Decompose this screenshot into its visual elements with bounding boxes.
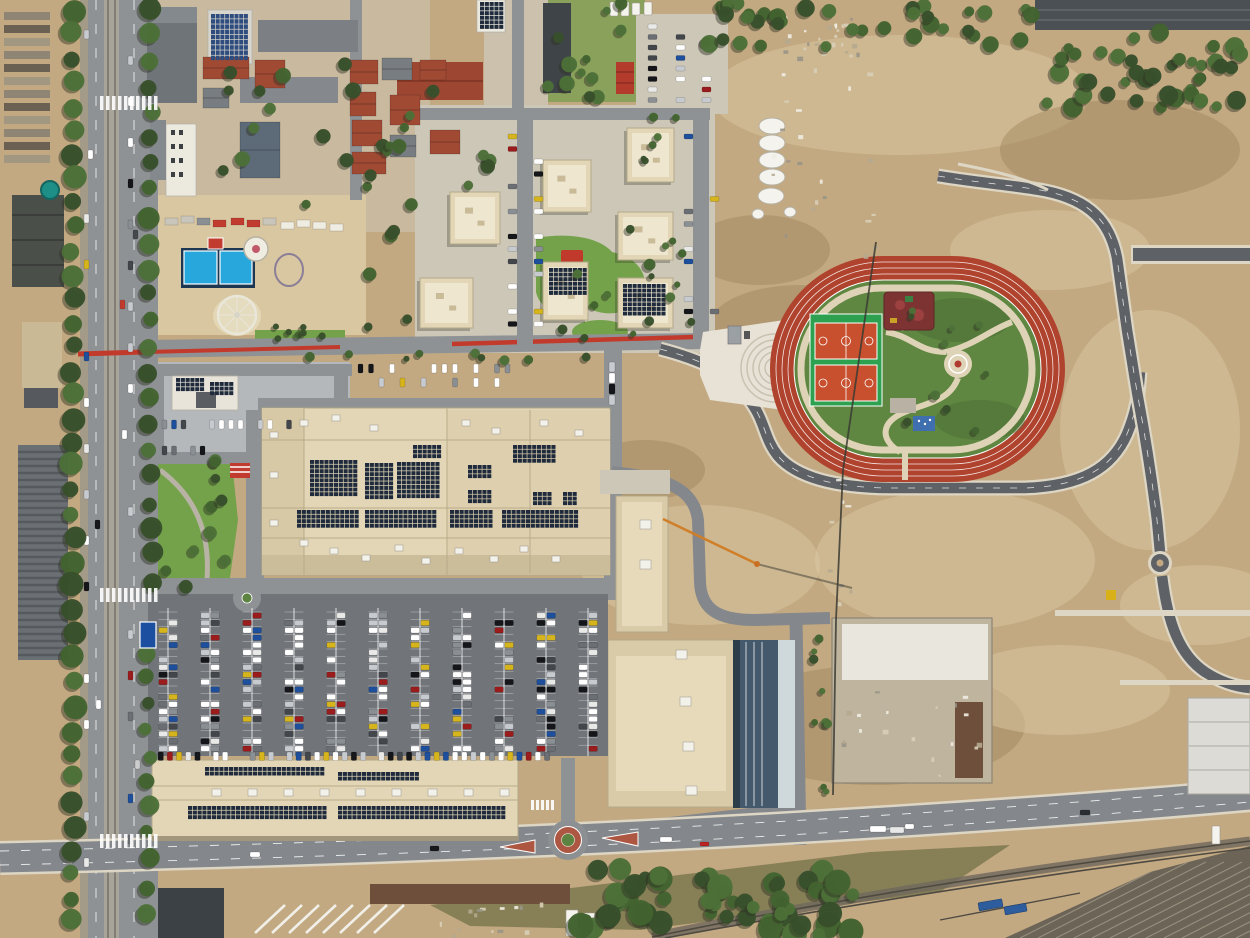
apartment-block bbox=[447, 192, 500, 247]
parked-car bbox=[589, 746, 598, 751]
tree bbox=[1095, 46, 1107, 58]
solar-panel bbox=[217, 806, 221, 810]
tree bbox=[65, 287, 86, 308]
crosswalk-bar bbox=[154, 96, 158, 110]
solar-panel bbox=[563, 497, 567, 501]
parked-car bbox=[128, 794, 133, 803]
tree bbox=[949, 325, 955, 331]
solar-panel bbox=[435, 490, 439, 494]
solar-panel bbox=[311, 772, 315, 776]
solar-panel bbox=[402, 462, 406, 466]
tree bbox=[644, 316, 654, 326]
solar-panel bbox=[479, 524, 483, 528]
solar-panel bbox=[494, 16, 498, 20]
solar-panel bbox=[423, 524, 427, 528]
solar-panel bbox=[215, 382, 219, 386]
solar-panel bbox=[239, 35, 243, 40]
tree bbox=[586, 72, 598, 84]
solar-panel bbox=[340, 524, 344, 528]
solar-panel bbox=[243, 772, 247, 776]
tree bbox=[792, 915, 812, 935]
parked-car bbox=[84, 398, 89, 407]
solar-panel bbox=[397, 485, 401, 489]
solar-panel bbox=[324, 465, 328, 469]
solar-panel bbox=[426, 476, 430, 480]
debris-item bbox=[849, 590, 852, 594]
solar-panel bbox=[348, 460, 352, 464]
solar-panel bbox=[657, 312, 661, 316]
solar-panel bbox=[502, 524, 506, 528]
solar-panel bbox=[230, 24, 234, 29]
solar-panel bbox=[560, 510, 564, 514]
parked-car bbox=[421, 665, 430, 670]
solar-panel bbox=[241, 806, 245, 810]
solar-panel bbox=[250, 811, 254, 815]
parked-car bbox=[648, 77, 657, 82]
solar-panel bbox=[421, 494, 425, 498]
solar-panel bbox=[188, 815, 192, 819]
tree bbox=[559, 76, 575, 92]
debris-item bbox=[491, 930, 493, 933]
solar-panel bbox=[315, 483, 319, 487]
parked-car bbox=[379, 752, 384, 761]
solar-panel bbox=[381, 772, 385, 776]
debris-item bbox=[856, 53, 859, 58]
solar-panel bbox=[322, 811, 326, 815]
solar-panel bbox=[389, 491, 393, 495]
parked-car bbox=[508, 134, 517, 139]
solar-panel bbox=[521, 515, 525, 519]
solar-panel bbox=[499, 20, 503, 24]
solar-panel bbox=[210, 382, 214, 386]
solar-panel bbox=[416, 462, 420, 466]
tree bbox=[61, 144, 83, 166]
parked-car bbox=[508, 309, 517, 314]
solar-panel bbox=[538, 492, 542, 496]
tree bbox=[137, 904, 156, 923]
solar-panel bbox=[365, 486, 369, 490]
debris-item bbox=[974, 747, 978, 750]
parked-car bbox=[474, 364, 479, 373]
debris-item bbox=[871, 214, 875, 216]
parked-car bbox=[537, 687, 546, 692]
solar-panel bbox=[315, 469, 319, 473]
crane-base bbox=[754, 561, 760, 567]
debris-item bbox=[807, 42, 809, 46]
parked-car bbox=[579, 642, 588, 647]
parked-car bbox=[333, 752, 338, 761]
parked-car bbox=[547, 665, 556, 670]
solar-panel bbox=[318, 811, 322, 815]
solar-panel bbox=[324, 478, 328, 482]
red-containers bbox=[616, 62, 634, 94]
solar-panel bbox=[188, 806, 192, 810]
solar-panel bbox=[532, 450, 536, 454]
solar-panel bbox=[216, 30, 220, 34]
solar-panel bbox=[370, 491, 374, 495]
hvac-unit bbox=[270, 520, 278, 526]
parked-car bbox=[128, 138, 133, 147]
tree bbox=[63, 0, 86, 23]
solar-panel bbox=[375, 524, 379, 528]
solar-panel bbox=[423, 519, 427, 523]
solar-panel bbox=[415, 806, 419, 810]
solar-panel bbox=[623, 312, 627, 316]
hvac-unit bbox=[575, 430, 583, 436]
hvac-unit bbox=[356, 789, 365, 796]
parked-car bbox=[453, 378, 458, 387]
parked-car bbox=[253, 613, 262, 618]
roof-structure bbox=[465, 208, 473, 214]
solar-panel bbox=[301, 772, 305, 776]
solar-panel bbox=[490, 11, 494, 15]
solar-panel bbox=[350, 524, 354, 528]
solar-panel bbox=[547, 459, 551, 463]
solar-panel bbox=[513, 445, 517, 449]
parked-car bbox=[648, 98, 657, 103]
tree bbox=[63, 165, 87, 189]
solar-panel bbox=[370, 463, 374, 467]
solar-panel bbox=[353, 488, 357, 492]
solar-panel bbox=[302, 510, 306, 514]
solar-panel bbox=[410, 815, 414, 819]
solar-panel bbox=[642, 307, 646, 311]
hvac-unit bbox=[520, 546, 528, 552]
parked-car bbox=[379, 620, 388, 625]
parked-car bbox=[169, 672, 178, 677]
hvac-unit bbox=[680, 697, 691, 706]
tree bbox=[771, 876, 785, 890]
solar-panel bbox=[348, 488, 352, 492]
crosswalk-bar bbox=[118, 96, 122, 110]
parked-car bbox=[390, 364, 395, 373]
material-stack bbox=[4, 103, 50, 111]
solar-panel bbox=[568, 497, 572, 501]
solar-panel bbox=[408, 515, 412, 519]
parked-car bbox=[167, 752, 172, 761]
parked-car bbox=[537, 716, 546, 721]
solar-panel bbox=[633, 312, 637, 316]
parked-car bbox=[495, 724, 504, 729]
crosswalk-bar bbox=[148, 588, 152, 602]
solar-panel bbox=[344, 488, 348, 492]
solar-panel bbox=[410, 811, 414, 815]
parked-car bbox=[434, 752, 439, 761]
apartment-block bbox=[540, 160, 591, 215]
parked-car bbox=[397, 752, 402, 761]
solar-panel bbox=[265, 811, 269, 815]
mini-roundabout bbox=[1148, 551, 1172, 575]
vehicle bbox=[96, 700, 101, 709]
solar-panel bbox=[352, 777, 356, 781]
roof-structure bbox=[653, 158, 660, 163]
parked-car bbox=[547, 679, 556, 684]
debris-item bbox=[837, 29, 840, 31]
solar-panel bbox=[211, 19, 215, 24]
tree bbox=[478, 150, 489, 161]
crosswalk-bar bbox=[154, 834, 158, 848]
solar-panel bbox=[386, 811, 390, 815]
tree bbox=[644, 259, 656, 271]
parked-car bbox=[400, 378, 405, 387]
solar-panel bbox=[435, 494, 439, 498]
solar-panel bbox=[335, 515, 339, 519]
tree bbox=[665, 292, 675, 302]
tree bbox=[140, 284, 156, 300]
roof-structure bbox=[635, 226, 643, 232]
solar-panel bbox=[657, 298, 661, 302]
solar-panel bbox=[320, 767, 324, 771]
tree bbox=[976, 321, 984, 329]
solar-panel bbox=[532, 454, 536, 458]
solar-panel bbox=[308, 811, 312, 815]
solar-panel bbox=[307, 524, 311, 528]
solar-panel bbox=[405, 777, 409, 781]
solar-panel bbox=[657, 307, 661, 311]
parked-car bbox=[589, 716, 598, 721]
block-roof-inner bbox=[425, 283, 468, 323]
solar-panel bbox=[229, 767, 233, 771]
solar-panel bbox=[274, 811, 278, 815]
solar-panel bbox=[348, 806, 352, 810]
solar-panel bbox=[298, 811, 302, 815]
hvac-unit bbox=[686, 786, 697, 795]
solar-panel bbox=[296, 767, 300, 771]
solar-panel bbox=[372, 777, 376, 781]
solar-panel bbox=[229, 387, 233, 391]
debris-item bbox=[868, 159, 873, 162]
parked-car bbox=[295, 724, 304, 729]
parked-car bbox=[505, 657, 514, 662]
aerial-photo-canvas bbox=[0, 0, 1250, 938]
solar-panel bbox=[563, 501, 567, 505]
crosswalk-bar bbox=[142, 588, 146, 602]
tree bbox=[400, 123, 409, 132]
solar-panel bbox=[426, 490, 430, 494]
debris-item bbox=[785, 39, 790, 44]
solar-panel bbox=[367, 777, 371, 781]
solar-panel bbox=[547, 454, 551, 458]
parked-car bbox=[128, 261, 133, 270]
solar-panel bbox=[339, 460, 343, 464]
solar-panel bbox=[316, 524, 320, 528]
solar-panel bbox=[657, 289, 661, 293]
solar-panel bbox=[321, 524, 325, 528]
solar-panel bbox=[478, 490, 482, 494]
solar-panel bbox=[212, 806, 216, 810]
solar-panel bbox=[318, 806, 322, 810]
solar-panel bbox=[426, 462, 430, 466]
parked-car bbox=[443, 752, 448, 761]
parked-car bbox=[253, 739, 262, 744]
parked-car bbox=[211, 613, 220, 618]
solar-panel bbox=[244, 45, 248, 50]
solar-panel bbox=[207, 806, 211, 810]
solar-panel bbox=[411, 467, 415, 471]
solar-panel bbox=[394, 515, 398, 519]
parked-car bbox=[537, 642, 546, 647]
parked-car bbox=[159, 724, 168, 729]
solar-panel bbox=[211, 50, 215, 55]
crosswalk-bar bbox=[148, 96, 152, 110]
solar-panel bbox=[386, 806, 390, 810]
solar-panel bbox=[345, 510, 349, 514]
solar-panel bbox=[413, 510, 417, 514]
silo-tank bbox=[759, 135, 785, 151]
solar-panel bbox=[482, 470, 486, 474]
parked-car bbox=[285, 687, 294, 692]
solar-panel bbox=[331, 519, 335, 523]
solar-panel bbox=[344, 492, 348, 496]
tree bbox=[385, 142, 393, 150]
solar-panel bbox=[239, 30, 243, 34]
parked-car bbox=[489, 752, 494, 761]
solar-panel bbox=[244, 30, 248, 34]
parked-car bbox=[547, 657, 556, 662]
solar-panel bbox=[376, 811, 380, 815]
parked-car bbox=[463, 613, 472, 618]
solar-panel bbox=[370, 472, 374, 476]
solar-panel bbox=[367, 772, 371, 776]
debris-item bbox=[828, 569, 833, 572]
parked-car bbox=[537, 739, 546, 744]
striped-kiosk bbox=[230, 463, 250, 478]
solar-panel bbox=[482, 806, 486, 810]
tree bbox=[62, 243, 80, 261]
solar-panel bbox=[473, 495, 477, 499]
solar-panel bbox=[225, 35, 229, 40]
tree bbox=[908, 313, 914, 319]
fair-trailer bbox=[263, 218, 276, 225]
solar-panel bbox=[437, 450, 441, 454]
aerial-photo bbox=[0, 0, 1250, 938]
solar-panel bbox=[320, 465, 324, 469]
parked-car bbox=[453, 716, 462, 721]
tree bbox=[809, 655, 818, 664]
tree bbox=[141, 53, 159, 71]
solar-panel bbox=[502, 519, 506, 523]
demolition-site bbox=[832, 618, 992, 783]
vehicle bbox=[870, 826, 886, 832]
solar-panel bbox=[244, 24, 248, 29]
solar-panel bbox=[315, 488, 319, 492]
solar-panel bbox=[568, 501, 572, 505]
solar-panel bbox=[375, 510, 379, 514]
parked-car bbox=[379, 687, 388, 692]
solar-panel bbox=[477, 806, 481, 810]
solar-panel bbox=[408, 510, 412, 514]
solar-panel bbox=[652, 298, 656, 302]
roof-structure bbox=[648, 238, 655, 243]
debris-item bbox=[520, 906, 523, 910]
solar-panel bbox=[468, 490, 472, 494]
solar-panel bbox=[487, 474, 491, 478]
solar-panel bbox=[397, 490, 401, 494]
solar-panel bbox=[488, 515, 492, 519]
solar-panel bbox=[647, 307, 651, 311]
parked-car bbox=[268, 752, 273, 761]
solar-panel bbox=[647, 298, 651, 302]
solar-panel bbox=[418, 515, 422, 519]
solar-panel bbox=[348, 469, 352, 473]
solar-panel bbox=[308, 806, 312, 810]
solar-panel bbox=[411, 462, 415, 466]
parked-car bbox=[453, 672, 462, 677]
solar-panel bbox=[246, 806, 250, 810]
solar-panel bbox=[526, 510, 530, 514]
solar-panel bbox=[210, 772, 214, 776]
solar-panel bbox=[501, 806, 505, 810]
parked-car bbox=[453, 642, 462, 647]
solar-panel bbox=[559, 273, 563, 277]
parked-car bbox=[211, 687, 220, 692]
solar-panel bbox=[647, 312, 651, 316]
parked-car bbox=[474, 378, 479, 387]
solar-panel bbox=[657, 284, 661, 288]
tree bbox=[1013, 32, 1029, 48]
solar-panel bbox=[384, 519, 388, 523]
solar-panel bbox=[277, 767, 281, 771]
solar-panel bbox=[386, 772, 390, 776]
parked-car bbox=[128, 220, 133, 229]
parked-car bbox=[128, 671, 133, 680]
solar-panel bbox=[478, 465, 482, 469]
parked-car bbox=[416, 752, 421, 761]
solar-panel-array bbox=[210, 382, 233, 395]
solar-panel bbox=[324, 460, 328, 464]
solar-panel bbox=[397, 467, 401, 471]
solar-panel bbox=[284, 815, 288, 819]
tree bbox=[568, 913, 594, 938]
tree bbox=[161, 565, 172, 576]
solar-panel bbox=[353, 460, 357, 464]
tree bbox=[145, 104, 161, 120]
debris-item bbox=[540, 903, 544, 908]
solar-panel bbox=[402, 490, 406, 494]
parked-car bbox=[201, 628, 210, 633]
parked-car bbox=[589, 650, 598, 655]
parked-car bbox=[219, 420, 224, 429]
parked-car bbox=[253, 716, 262, 721]
solar-panel bbox=[215, 391, 219, 395]
solar-panel bbox=[550, 510, 554, 514]
solar-panel bbox=[455, 519, 459, 523]
solar-panel bbox=[315, 772, 319, 776]
tower-annex bbox=[150, 120, 166, 180]
parked-car bbox=[526, 752, 531, 761]
parked-car bbox=[211, 702, 220, 707]
solar-panel bbox=[573, 497, 577, 501]
tree bbox=[64, 816, 87, 839]
crosswalk-bar bbox=[124, 588, 128, 602]
tree bbox=[582, 55, 590, 63]
solar-panel bbox=[637, 307, 641, 311]
parked-car bbox=[495, 620, 504, 625]
silo-tank bbox=[759, 152, 785, 168]
debris-item bbox=[788, 34, 792, 38]
debris-item bbox=[912, 737, 916, 741]
solar-panel bbox=[568, 268, 572, 272]
tree bbox=[61, 265, 83, 287]
tree bbox=[774, 907, 788, 921]
solar-panel bbox=[637, 298, 641, 302]
parked-car bbox=[452, 752, 457, 761]
solar-panel bbox=[547, 492, 551, 496]
solar-panel bbox=[205, 772, 209, 776]
house bbox=[382, 58, 412, 80]
vehicle bbox=[700, 842, 709, 846]
solar-panel bbox=[215, 387, 219, 391]
